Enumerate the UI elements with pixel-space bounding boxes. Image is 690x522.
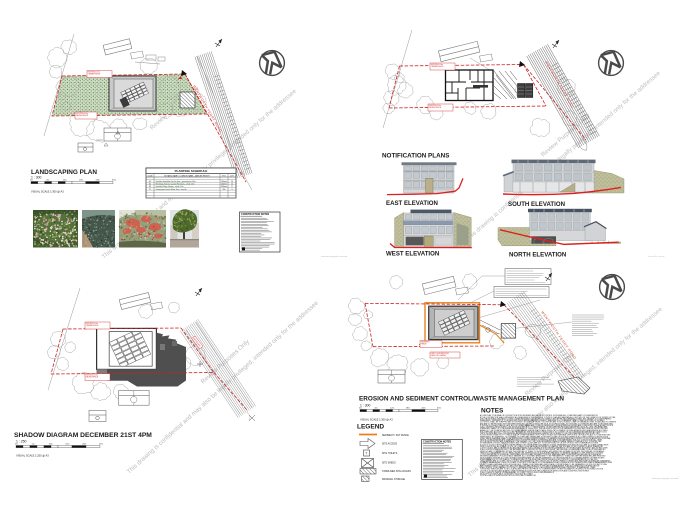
svg-text:SITE ACCESS: SITE ACCESS: [382, 442, 398, 445]
svg-text:CODE: CODE: [147, 175, 153, 177]
svg-text:PALING FENCE: PALING FENCE: [86, 376, 99, 379]
svg-text:0m: 0m: [30, 180, 33, 182]
svg-text:X) SITE DOMESTIC FENCING PROT: X) SITE DOMESTIC FENCING PROTECTED WITH …: [480, 474, 536, 477]
svg-text:24m: 24m: [421, 408, 425, 410]
svg-text:T1: T1: [149, 189, 151, 191]
svg-text:VEHICLE LOADING: VEHICLE LOADING: [431, 354, 447, 357]
svg-text:EROSION AND SEDIMENT CONTROL/W: EROSION AND SEDIMENT CONTROL/WASTE MANAG…: [359, 396, 564, 403]
svg-text:NOTIFICATION PLANS: NOTIFICATION PLANS: [382, 153, 449, 160]
svg-text:drawing copyright reserved: drawing copyright reserved: [652, 477, 679, 480]
svg-text:NORTH ELEVATION: NORTH ELEVATION: [509, 251, 566, 258]
svg-text:200mm: 200mm: [221, 186, 227, 188]
svg-text:12m: 12m: [390, 408, 394, 410]
svg-text:6m: 6m: [375, 408, 378, 410]
svg-text:BOTANIC NAME / COMMON NAME - M: BOTANIC NAME / COMMON NAME - MATURE HEIG…: [164, 174, 210, 177]
svg-text:LEGEND: LEGEND: [357, 424, 384, 431]
svg-text:PALING FENCE: PALING FENCE: [76, 114, 89, 117]
svg-text:EAST ELEVATION: EAST ELEVATION: [386, 200, 438, 207]
svg-text:30m: 30m: [112, 180, 116, 182]
svg-text:PLANTING SCHEDULE: PLANTING SCHEDULE: [175, 169, 208, 173]
svg-text:18m: 18m: [79, 180, 83, 182]
svg-text:25L: 25L: [223, 189, 226, 191]
svg-text:20m: 20m: [82, 444, 86, 446]
svg-text:SOUTH ELEVATION: SOUTH ELEVATION: [508, 201, 565, 208]
svg-text:Grevillea obtusifolia Gin Gin: Grevillea obtusifolia Gin Gin Gem - grou…: [156, 180, 197, 183]
svg-text:MATERIAL STORAGE: MATERIAL STORAGE: [382, 478, 406, 481]
svg-text:25m: 25m: [99, 444, 103, 446]
svg-text:TIMBER FENCE: TIMBER FENCE: [86, 325, 99, 327]
svg-text:VISUAL SCALE 1:250 @ A3: VISUAL SCALE 1:250 @ A3: [16, 454, 49, 458]
svg-text:8: 8: [232, 186, 233, 188]
svg-text:24m: 24m: [96, 180, 100, 182]
svg-text:CONSTRUCTION NOTES: CONSTRUCTION NOTES: [423, 441, 452, 444]
svg-text:VISUAL SCALE 1:300 @ A3: VISUAL SCALE 1:300 @ A3: [360, 418, 393, 422]
svg-text:SHADOW DIAGRAM DECEMBER 21ST 4: SHADOW DIAGRAM DECEMBER 21ST 4PM: [14, 432, 152, 439]
svg-text:5m: 5m: [32, 444, 35, 446]
svg-text:drawing copyright reserved: drawing copyright reserved: [321, 255, 348, 258]
svg-text:SEDIMENT / SILT FENCE: SEDIMENT / SILT FENCE: [382, 435, 409, 437]
svg-text:12m: 12m: [63, 180, 67, 182]
svg-text:issued for review: issued for review: [648, 255, 665, 258]
svg-text:SITE TOILETS: SITE TOILETS: [382, 453, 398, 455]
svg-text:6m: 6m: [46, 180, 49, 182]
svg-text:0m: 0m: [15, 444, 18, 446]
svg-text:SITE SHEDS: SITE SHEDS: [382, 463, 396, 465]
svg-text:TIMBER FENCE: TIMBER FENCE: [88, 73, 101, 75]
svg-text:PALING FENCE: PALING FENCE: [429, 106, 442, 109]
svg-text:WEST ELEVATION: WEST ELEVATION: [386, 250, 439, 257]
svg-text:15m: 15m: [65, 444, 69, 446]
svg-text:TIMBER FENCE: TIMBER FENCE: [431, 66, 444, 68]
svg-text:3: 3: [232, 189, 233, 191]
svg-text:Westringia fruticosa Coastal R: Westringia fruticosa Coastal Rosemary - …: [156, 183, 196, 186]
svg-text:STABILISED SITE ACCESS: STABILISED SITE ACCESS: [382, 470, 411, 473]
svg-text:0m: 0m: [359, 408, 362, 410]
svg-text:VISUAL SCALE 1:300 @ A3: VISUAL SCALE 1:300 @ A3: [31, 190, 64, 194]
svg-text:30m: 30m: [437, 408, 441, 410]
svg-text:NOTES: NOTES: [481, 408, 504, 415]
svg-text:Grevillea Robyn Gordon - shrub: Grevillea Robyn Gordon - shrub 1.5m: [156, 185, 185, 188]
svg-text:18m: 18m: [406, 408, 410, 410]
svg-text:Tristaniopsis laurina Water Gu: Tristaniopsis laurina Water Gum - tree 8…: [156, 188, 188, 191]
svg-text:S2: S2: [149, 186, 151, 188]
svg-text:10m: 10m: [49, 444, 53, 446]
svg-text:FENCE: FENCE: [421, 343, 428, 345]
svg-text:CONSTRUCTION NOTES: CONSTRUCTION NOTES: [241, 213, 270, 216]
